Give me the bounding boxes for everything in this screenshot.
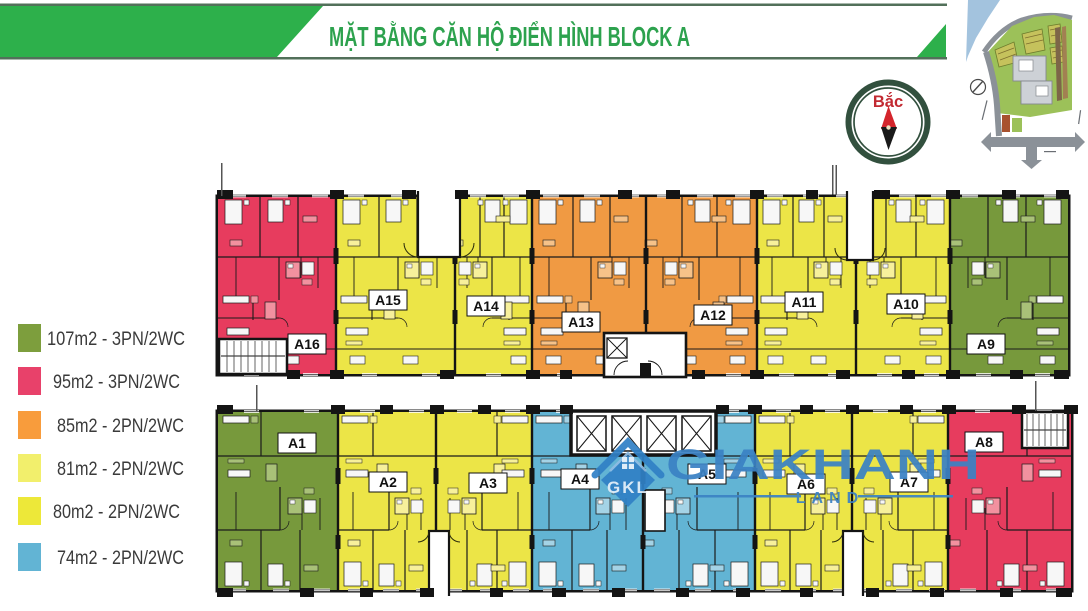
svg-text:A2: A2 [379,474,397,490]
svg-text:81m2 - 2PN/2WC: 81m2 - 2PN/2WC [57,459,184,480]
svg-text:95m2 - 3PN/2WC: 95m2 - 3PN/2WC [53,372,180,393]
svg-text:A11: A11 [792,294,817,310]
svg-text:GKL: GKL [607,478,649,497]
svg-text:85m2 - 2PN/2WC: 85m2 - 2PN/2WC [57,416,184,437]
svg-text:A13: A13 [568,314,594,330]
svg-text:A14: A14 [473,298,499,314]
svg-text:A1: A1 [288,435,306,451]
svg-text:80m2 - 2PN/2WC: 80m2 - 2PN/2WC [53,502,180,523]
svg-text:A4: A4 [571,471,589,487]
svg-text:A3: A3 [479,475,497,491]
svg-text:GIAKHANH: GIAKHANH [666,441,980,489]
svg-text:A9: A9 [977,336,995,352]
svg-text:A16: A16 [294,336,320,352]
svg-text:107m2 - 3PN/2WC: 107m2 - 3PN/2WC [47,329,185,350]
svg-text:MẶT BẰNG CĂN HỘ ĐIỂN HÌNH BLOC: MẶT BẰNG CĂN HỘ ĐIỂN HÌNH BLOCK A [329,20,690,52]
svg-text:A10: A10 [893,296,919,312]
svg-text:A15: A15 [375,292,401,308]
svg-text:74m2 - 2PN/2WC: 74m2 - 2PN/2WC [57,548,184,569]
svg-text:LAND: LAND [796,490,864,507]
svg-text:A12: A12 [700,307,726,323]
